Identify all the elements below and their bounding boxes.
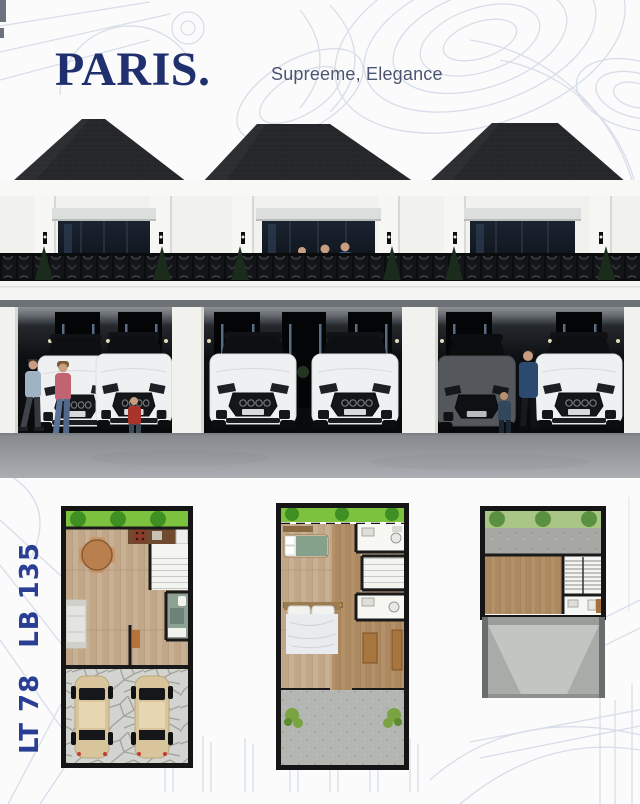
- building-render-image: [0, 110, 640, 478]
- floor-plans-image: [0, 480, 640, 804]
- floor-plan-upper: [279, 506, 407, 768]
- roof-middle: [201, 124, 417, 184]
- plan1-door: [132, 630, 140, 648]
- plan3-roof-top-view: [482, 617, 605, 698]
- plan2-wardrobe: [392, 630, 402, 670]
- plan2-master-bed: [283, 602, 343, 654]
- floor-plan-ground: [64, 509, 191, 766]
- plan1-bathroom: [166, 592, 188, 640]
- roof-right: [428, 123, 627, 183]
- plan1-car: [71, 676, 113, 758]
- plan1-sofa: [66, 600, 86, 648]
- balcony-railing: [0, 253, 640, 281]
- flyer-page: PARIS. Supreeme, Elegance: [0, 0, 640, 804]
- plan3-terrace: [485, 528, 601, 555]
- plan3-bathroom: [565, 597, 601, 614]
- balcony-slab: [0, 281, 640, 307]
- roof-left: [12, 119, 187, 182]
- plan1-car: [131, 676, 173, 758]
- page-title: PARIS.: [55, 42, 210, 97]
- plan1-carport: [66, 667, 188, 763]
- plan1-stairs: [150, 544, 188, 590]
- plan2-stairs: [362, 556, 404, 590]
- plan2-cabinet: [363, 633, 377, 663]
- plan3-stairs: [565, 557, 601, 595]
- plan3-room: [485, 555, 563, 614]
- carport-plant: [297, 366, 309, 378]
- plan2-bathroom-mid: [356, 594, 404, 620]
- tagline: Supreeme, Elegance: [271, 64, 443, 85]
- plan1-kitchen: [128, 528, 188, 544]
- plan2-balcony: [281, 690, 404, 765]
- floor-plan-roof: [482, 509, 605, 699]
- plan2-bathroom-top: [356, 524, 404, 552]
- road: [0, 433, 640, 478]
- corner-marks: [0, 0, 6, 38]
